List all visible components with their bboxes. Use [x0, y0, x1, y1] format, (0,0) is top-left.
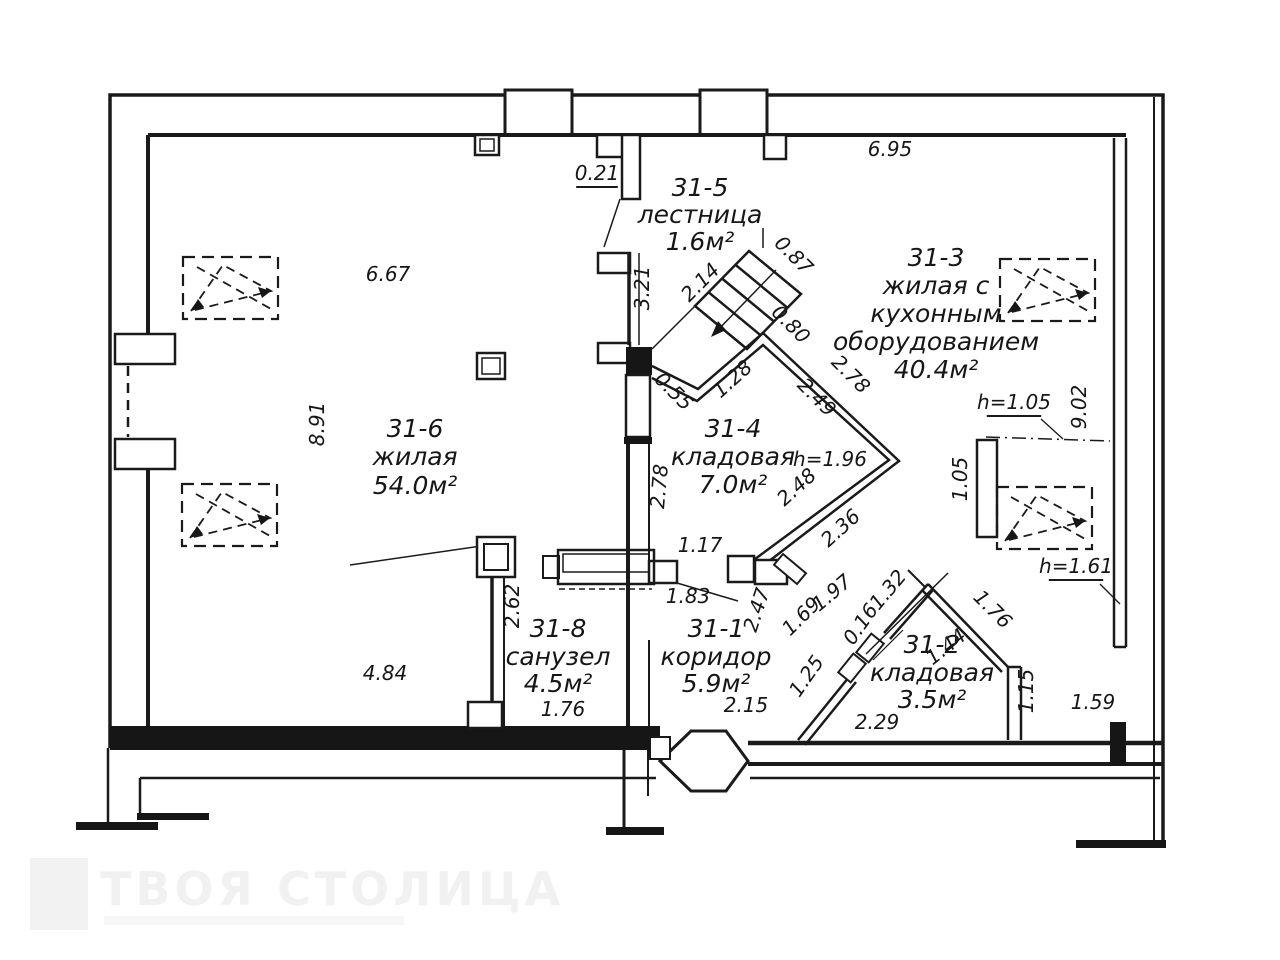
room-label-31-8: 4.5м²	[524, 669, 593, 698]
roof-window-icon	[182, 484, 277, 546]
top-wall-bump	[700, 90, 767, 135]
floor-plan-canvas: 31-5лестница1.6м²31-3жилая скухоннымобор…	[0, 0, 1280, 960]
dash-dot-height-line	[986, 437, 1110, 441]
room-label-31-8: 31-8	[530, 614, 587, 643]
room-label-31-3: оборудованием	[833, 327, 1039, 356]
room-label-31-8: санузел	[506, 642, 611, 671]
dimension-label: 6.67	[366, 262, 411, 286]
dimension-label: h=1.61	[1039, 554, 1113, 578]
column	[477, 353, 505, 379]
floorplan-page: { "plan": { "rooms": [ {"id":"31-5","nam…	[0, 0, 1280, 960]
dimension-label: 2.62	[500, 584, 524, 629]
dimension-label: h=1.05	[977, 390, 1051, 414]
room-label-31-6: жилая	[371, 442, 457, 471]
dimension-label: 0.80	[767, 300, 815, 348]
leader-line	[1100, 584, 1120, 604]
bathtub-icon	[543, 550, 654, 589]
room-label-31-5: лестница	[637, 200, 763, 229]
room-label-31-4: 7.0м²	[699, 470, 768, 499]
roof-window-icon	[1000, 259, 1095, 321]
room-label-31-6: 54.0м²	[373, 471, 458, 500]
dimension-label: 1.83	[666, 584, 711, 608]
dimension-label: 2.78	[827, 350, 875, 398]
dimension-label: 0.87	[770, 231, 819, 280]
dimension-label: 1.76	[969, 585, 1017, 633]
dimension-label: 1.15	[1014, 669, 1038, 714]
dimension-label: 0.55	[650, 367, 698, 415]
bay-hexagon	[660, 731, 748, 791]
dimension-label: 2.78	[645, 463, 673, 509]
dimension-label: 2.47	[738, 585, 775, 635]
labels-layer: 31-5лестница1.6м²31-3жилая скухоннымобор…	[305, 137, 1115, 734]
room-label-31-5: 1.6м²	[666, 227, 735, 256]
column	[468, 702, 502, 728]
room-label-31-3: кухонным	[870, 299, 1001, 328]
dimension-label: 4.84	[363, 661, 408, 685]
dimension-label: h=1.96	[793, 447, 867, 471]
roof-window-icon	[183, 257, 278, 319]
dimension-label: 0.21	[575, 161, 620, 185]
leader-line	[604, 199, 620, 247]
dimension-label: 2.15	[724, 693, 769, 717]
fixture	[728, 556, 754, 582]
room-label-31-3: жилая с	[882, 271, 990, 300]
room-label-31-4: 31-4	[705, 414, 762, 443]
dimension-label: 2.36	[816, 504, 865, 552]
room-label-31-2: 3.5м²	[898, 685, 967, 714]
room-label-31-5: 31-5	[672, 173, 729, 202]
wall-stub	[764, 135, 786, 159]
column	[475, 135, 499, 155]
left-wall-niche	[115, 439, 175, 469]
dimension-label: 8.91	[305, 402, 329, 447]
room-label-31-3: 31-3	[908, 243, 965, 272]
leader-line	[1041, 419, 1063, 439]
dimension-label: 6.95	[868, 137, 913, 161]
dimension-label: 3.21	[630, 266, 654, 311]
room-label-31-1: коридор	[661, 642, 772, 671]
dimension-label: 1.76	[541, 697, 586, 721]
room-label-31-4: кладовая	[671, 442, 795, 471]
dimension-label: 1.59	[1071, 690, 1116, 714]
room-label-31-1: 31-1	[688, 614, 745, 643]
dimension-label: 1.05	[948, 457, 972, 502]
top-wall-bump	[505, 90, 572, 135]
dimension-label: 1.28	[708, 355, 757, 403]
room-label-31-3: 40.4м²	[894, 355, 979, 384]
left-wall-niche	[115, 334, 175, 364]
room-label-31-6: 31-6	[387, 414, 444, 443]
dimension-label: 9.02	[1067, 385, 1091, 430]
roof-window-icon	[997, 487, 1092, 549]
dimension-label: 1.25	[784, 651, 829, 701]
dimension-label: 2.29	[855, 710, 900, 734]
dimension-label: 1.17	[678, 533, 723, 557]
wall-stub	[977, 440, 997, 537]
